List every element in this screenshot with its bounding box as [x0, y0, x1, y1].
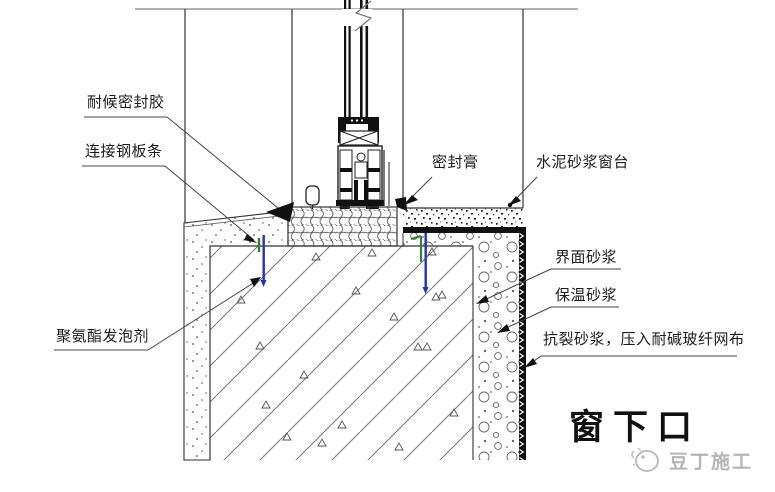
label-weather-sealant: 耐候密封胶 [87, 94, 165, 111]
foam-backer-block [288, 207, 397, 246]
label-interface-mortar: 界面砂浆 [555, 249, 617, 266]
window-sill-detail-page: 耐候密封胶 连接钢板条 聚氨酯发泡剂 密封膏 水泥砂浆窗台 界面砂浆 保温砂浆 … [0, 0, 775, 492]
fixing-bracket [306, 186, 319, 209]
label-steel-strip: 连接钢板条 [85, 143, 163, 160]
concrete-wall [210, 246, 473, 460]
label-sealing-paste: 密封膏 [432, 154, 479, 171]
doudin-logo-icon [628, 444, 664, 476]
anti-crack-mesh-strip [519, 233, 526, 460]
watermark: 豆丁施工 [628, 444, 753, 476]
label-anticrack-mortar: 抗裂砂浆，压入耐碱玻纤网布 [543, 331, 745, 348]
watermark-text: 豆丁施工 [669, 447, 753, 474]
waterproof-strip [403, 227, 526, 233]
window-frame [336, 117, 389, 209]
cement-mortar-sill [403, 208, 526, 233]
label-cement-sill: 水泥砂浆窗台 [536, 154, 629, 171]
label-insulation-mortar: 保温砂浆 [555, 287, 617, 304]
glass-panes [342, 0, 372, 130]
drawing-title: 窗下口 [569, 399, 701, 450]
label-pu-foam: 聚氨酯发泡剂 [56, 328, 149, 345]
